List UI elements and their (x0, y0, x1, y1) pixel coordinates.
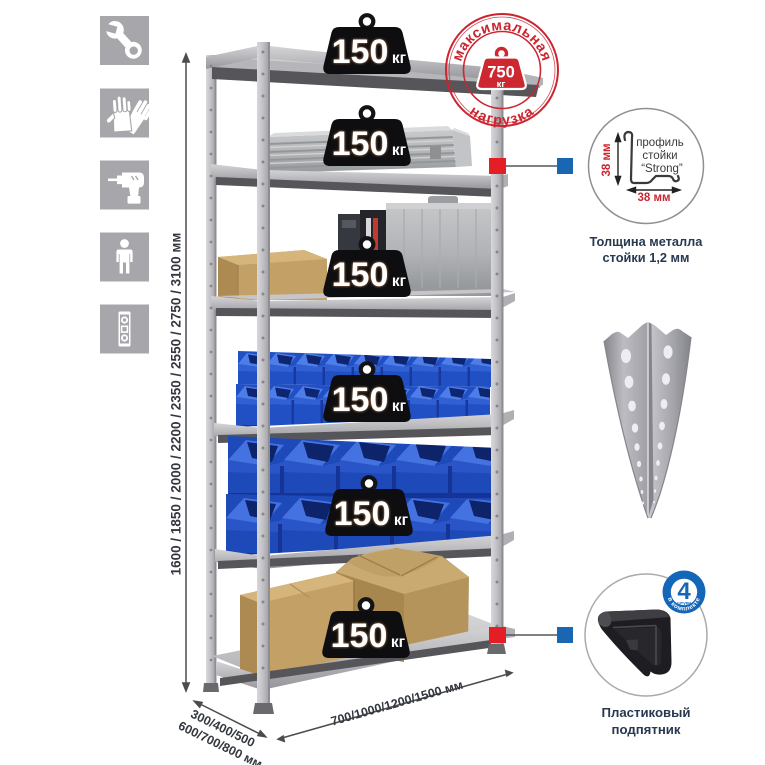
svg-text:Толщина металла: Толщина металла (590, 234, 704, 249)
svg-text:стойки 1,2 мм: стойки 1,2 мм (602, 250, 689, 265)
svg-text:Пластиковый: Пластиковый (601, 705, 690, 720)
svg-text:профиль: профиль (636, 137, 684, 149)
svg-text:38 мм: 38 мм (601, 143, 613, 176)
svg-text:1600 / 1850 / 2000 / 2200 / 23: 1600 / 1850 / 2000 / 2200 / 2350 / 2550 … (169, 233, 184, 576)
svg-text:38 мм: 38 мм (637, 192, 670, 204)
svg-text:“Strong”: “Strong” (641, 163, 683, 175)
svg-text:кг: кг (497, 79, 506, 90)
svg-text:подпятник: подпятник (611, 722, 680, 737)
svg-text:стойки: стойки (642, 150, 677, 162)
